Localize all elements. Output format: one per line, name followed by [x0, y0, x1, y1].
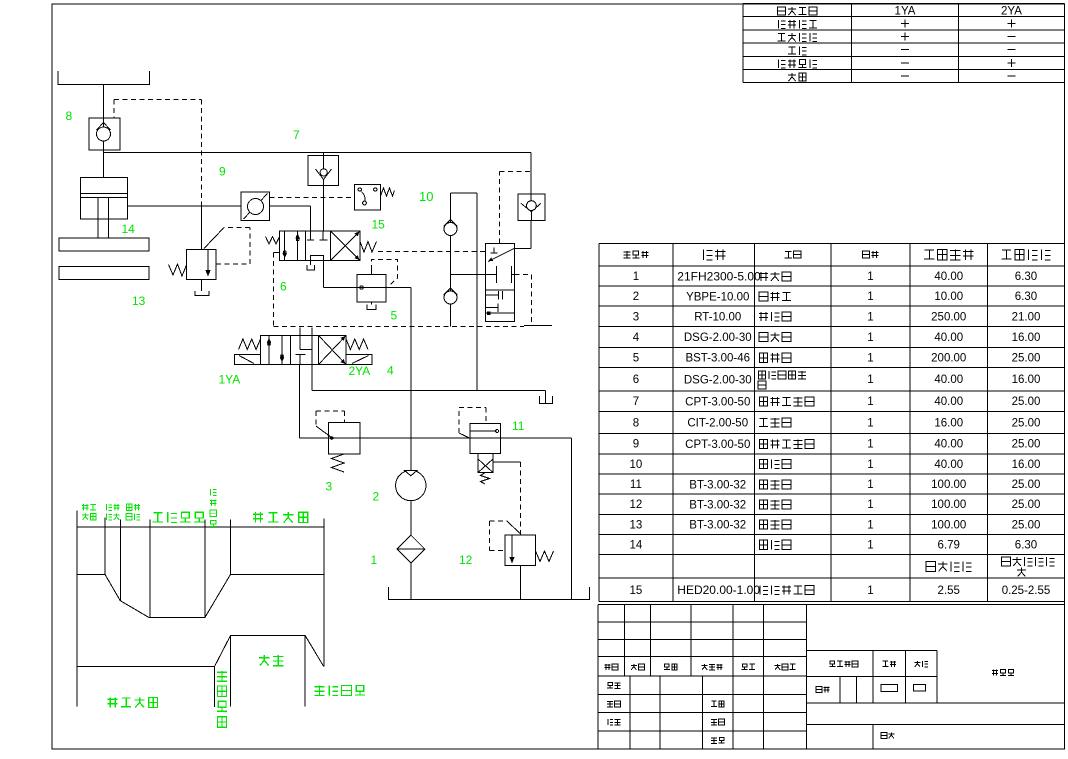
svg-text:1YA: 1YA [219, 373, 241, 387]
svg-text:BT-3.00-32: BT-3.00-32 [689, 520, 746, 532]
svg-text:CIT-2.00-50: CIT-2.00-50 [687, 418, 748, 430]
svg-text:8: 8 [633, 417, 639, 429]
svg-text:14: 14 [630, 540, 643, 552]
svg-text:7: 7 [633, 396, 639, 408]
svg-text:1: 1 [867, 540, 873, 552]
svg-text:16.00: 16.00 [934, 417, 963, 429]
svg-text:10: 10 [419, 189, 433, 204]
svg-text:13: 13 [630, 519, 643, 531]
svg-text:9: 9 [219, 165, 226, 179]
svg-text:1: 1 [867, 374, 873, 386]
svg-text:40.00: 40.00 [934, 374, 963, 386]
svg-text:25.00: 25.00 [1012, 519, 1041, 531]
svg-text:YBPE-10.00: YBPE-10.00 [686, 291, 749, 303]
svg-text:6: 6 [633, 374, 639, 386]
svg-text:1: 1 [867, 479, 873, 491]
svg-text:21.00: 21.00 [1012, 311, 1041, 323]
svg-text:3: 3 [633, 311, 639, 323]
svg-text:25.00: 25.00 [1012, 439, 1041, 451]
svg-text:1YA: 1YA [895, 6, 916, 18]
svg-text:100.00: 100.00 [931, 519, 966, 531]
svg-text:6.30: 6.30 [1015, 540, 1037, 552]
svg-text:1: 1 [867, 271, 873, 283]
svg-text:25.00: 25.00 [1012, 479, 1041, 491]
svg-text:2: 2 [373, 490, 380, 504]
svg-text:10.00: 10.00 [934, 291, 963, 303]
svg-text:25.00: 25.00 [1012, 396, 1041, 408]
svg-text:6.30: 6.30 [1015, 291, 1037, 303]
svg-text:DSG-2.00-30: DSG-2.00-30 [684, 374, 752, 386]
svg-text:1: 1 [633, 271, 639, 283]
svg-text:8: 8 [66, 109, 73, 123]
svg-text:1: 1 [867, 519, 873, 531]
svg-text:15: 15 [630, 585, 643, 597]
svg-text:11: 11 [630, 479, 642, 491]
svg-text:DSG-2.00-30: DSG-2.00-30 [684, 332, 752, 344]
svg-text:40.00: 40.00 [934, 271, 963, 283]
svg-text:0.25-2.55: 0.25-2.55 [1002, 585, 1051, 597]
svg-text:1: 1 [867, 439, 873, 451]
svg-text:25.00: 25.00 [1012, 417, 1041, 429]
svg-text:1: 1 [867, 332, 873, 344]
svg-text:1: 1 [867, 459, 873, 471]
svg-text:1: 1 [867, 353, 873, 365]
svg-text:7: 7 [293, 128, 300, 142]
svg-text:40.00: 40.00 [934, 332, 963, 344]
svg-text:1: 1 [867, 499, 873, 511]
svg-text:40.00: 40.00 [934, 459, 963, 471]
svg-text:13: 13 [132, 294, 146, 308]
svg-text:2YA: 2YA [1001, 6, 1022, 18]
svg-text:1: 1 [867, 291, 873, 303]
svg-text:200.00: 200.00 [931, 353, 966, 365]
svg-text:40.00: 40.00 [934, 396, 963, 408]
svg-text:16.00: 16.00 [1012, 459, 1041, 471]
svg-text:BT-3.00-32: BT-3.00-32 [689, 479, 746, 491]
svg-text:1: 1 [867, 417, 873, 429]
svg-text:1: 1 [867, 396, 873, 408]
svg-text:2.55: 2.55 [938, 585, 960, 597]
svg-text:12: 12 [459, 553, 473, 567]
svg-text:12: 12 [630, 499, 643, 511]
svg-text:1: 1 [867, 311, 873, 323]
svg-text:21FH2300-5.00: 21FH2300-5.00 [677, 269, 761, 283]
svg-text:11: 11 [512, 419, 525, 433]
svg-text:CPT-3.00-50: CPT-3.00-50 [685, 396, 750, 408]
svg-text:6.79: 6.79 [938, 540, 960, 552]
svg-text:4: 4 [633, 332, 640, 344]
svg-text:6: 6 [280, 280, 287, 294]
svg-text:6.30: 6.30 [1015, 271, 1037, 283]
svg-text:RT-10.00: RT-10.00 [694, 312, 741, 324]
svg-text:CPT-3.00-50: CPT-3.00-50 [685, 439, 750, 451]
svg-text:16.00: 16.00 [1012, 374, 1041, 386]
svg-text:5: 5 [391, 309, 398, 323]
svg-text:BST-3.00-46: BST-3.00-46 [685, 353, 750, 365]
svg-text:9: 9 [633, 439, 639, 451]
svg-text:1: 1 [867, 585, 873, 597]
svg-text:250.00: 250.00 [931, 311, 966, 323]
svg-text:HED20.00-1.00: HED20.00-1.00 [677, 583, 760, 597]
svg-text:16.00: 16.00 [1012, 332, 1041, 344]
svg-text:2: 2 [633, 291, 639, 303]
svg-text:100.00: 100.00 [931, 499, 966, 511]
svg-text:15: 15 [372, 218, 386, 232]
svg-text:25.00: 25.00 [1012, 499, 1041, 511]
svg-text:100.00: 100.00 [931, 479, 966, 491]
svg-text:2YA: 2YA [349, 364, 371, 378]
svg-text:10: 10 [630, 459, 643, 471]
svg-text:14: 14 [122, 222, 136, 236]
svg-text:1: 1 [371, 553, 378, 567]
svg-text:25.00: 25.00 [1012, 353, 1041, 365]
svg-text:4: 4 [387, 364, 394, 378]
svg-text:5: 5 [633, 353, 639, 365]
svg-text:BT-3.00-32: BT-3.00-32 [689, 499, 746, 511]
svg-text:40.00: 40.00 [934, 439, 963, 451]
svg-text:3: 3 [326, 480, 333, 494]
